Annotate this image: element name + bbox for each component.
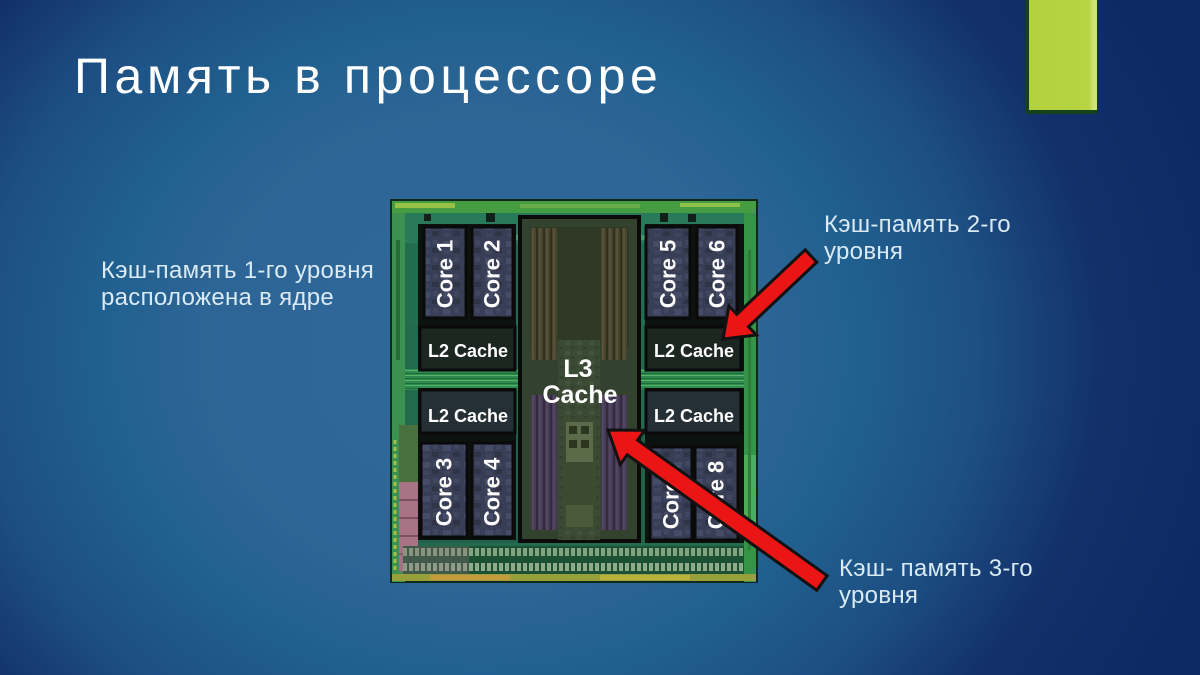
svg-text:L2 Cache: L2 Cache xyxy=(428,406,508,426)
svg-text:L2 Cache: L2 Cache xyxy=(654,406,734,426)
svg-text:Core 6: Core 6 xyxy=(705,240,730,308)
svg-text:Core 4: Core 4 xyxy=(480,457,505,526)
svg-text:L3: L3 xyxy=(563,355,592,383)
svg-text:Core 1: Core 1 xyxy=(433,240,458,308)
svg-text:L2 Cache: L2 Cache xyxy=(428,341,508,361)
svg-text:Core 5: Core 5 xyxy=(656,240,681,308)
svg-text:Cache: Cache xyxy=(542,381,617,409)
svg-text:L2 Cache: L2 Cache xyxy=(654,341,734,361)
svg-text:Core 3: Core 3 xyxy=(432,458,457,526)
svg-text:Core 2: Core 2 xyxy=(480,240,505,308)
